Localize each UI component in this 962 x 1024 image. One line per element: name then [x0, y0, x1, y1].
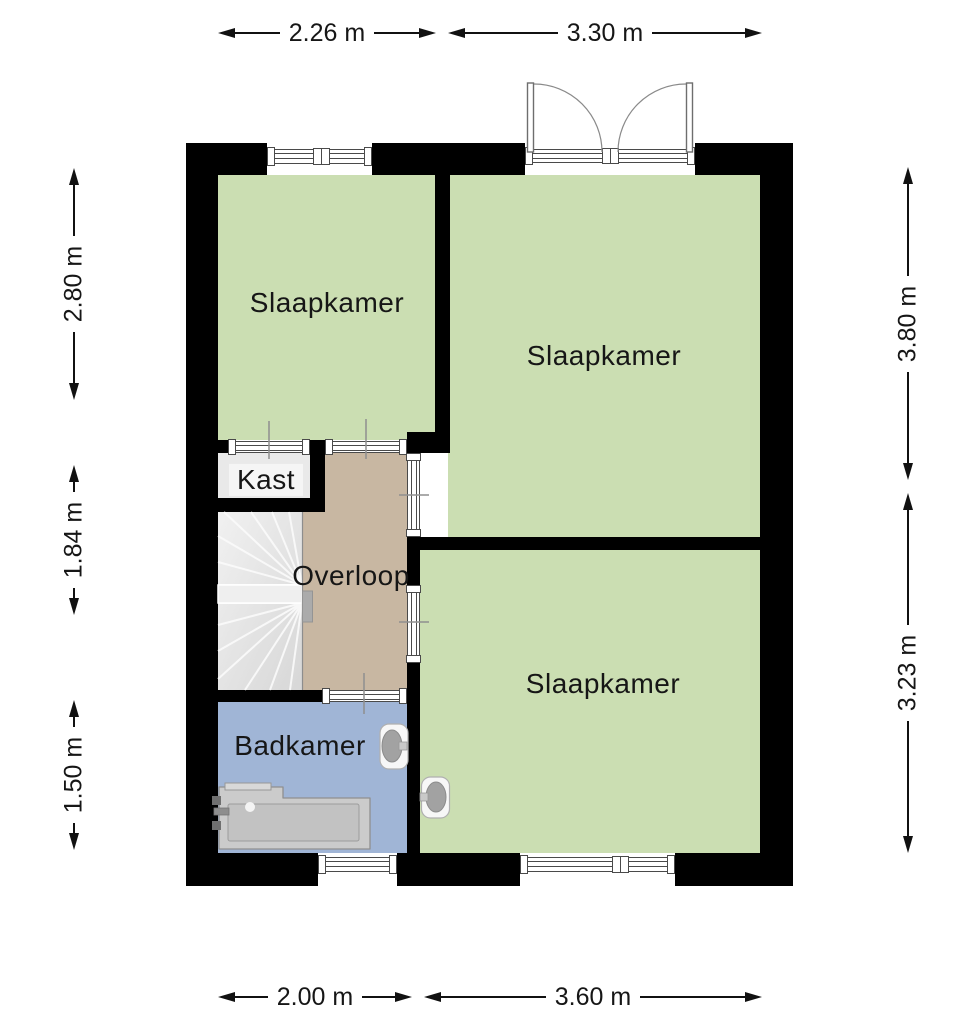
dimension-left-badkamer-height: 1.50 m	[60, 700, 88, 850]
wall-jog-overloop-corner	[407, 432, 450, 453]
door-hinge-block	[602, 148, 619, 164]
door-opening-kast	[228, 441, 310, 453]
wall-badkamer-top	[186, 690, 322, 702]
wall-exterior-bottom-b	[397, 853, 520, 886]
dimension-left-overloop-height: 1.84 m	[60, 465, 88, 615]
wall-exterior-top-b	[372, 143, 525, 175]
floor-plan: Slaapkamer Slaapkamer Slaapkamer Kast Ov…	[0, 0, 962, 1024]
door-opening-badkamer	[322, 690, 407, 702]
room-label-slaapkamer-top-left: Slaapkamer	[250, 287, 404, 319]
wall-exterior-bottom-c	[675, 853, 793, 886]
wall-exterior-right	[760, 143, 793, 886]
window-divider	[313, 148, 330, 165]
room-floor-overloop-lower	[302, 512, 407, 690]
dimension-top-right-width: 3.30 m	[448, 20, 762, 46]
room-floor-overloop-upper	[325, 453, 407, 512]
window-bottom-bedroom	[520, 857, 675, 872]
wall-between-top-bedrooms	[435, 175, 450, 443]
staircase	[218, 512, 313, 690]
wall-overloop-east-low	[407, 663, 420, 853]
window-divider	[612, 856, 629, 873]
window-top-bedroom	[267, 149, 372, 164]
room-label-slaapkamer-bottom-right: Slaapkamer	[526, 668, 680, 700]
french-door-sill	[525, 149, 695, 163]
dimension-bottom-bedroom-width: 3.60 m	[424, 984, 762, 1010]
room-floor-badkamer	[218, 702, 407, 853]
dimension-left-bedroom-height: 2.80 m	[60, 168, 88, 400]
french-doors	[528, 83, 693, 152]
room-label-slaapkamer-top-right: Slaapkamer	[527, 340, 681, 372]
wall-stub-left-bedroom	[218, 440, 228, 453]
dimension-bottom-badkamer-width: 2.00 m	[218, 984, 412, 1010]
room-label-badkamer: Badkamer	[234, 730, 366, 762]
room-label-overloop: Overloop	[292, 560, 410, 592]
room-label-kast: Kast	[229, 464, 303, 496]
dimension-top-left-width: 2.26 m	[218, 20, 436, 46]
wall-exterior-left	[186, 143, 218, 886]
room-floor-slaapkamer-bottom-right	[420, 550, 760, 853]
door-opening-top-left-bedroom	[325, 441, 407, 453]
window-bathroom	[318, 857, 397, 872]
door-opening-bottom-right-bedroom	[407, 585, 420, 663]
door-opening-top-right-bedroom	[407, 453, 420, 537]
dimension-right-top-bedroom-height: 3.80 m	[894, 167, 922, 480]
wall-kast-bottom	[186, 498, 325, 512]
wall-between-right-bedrooms	[420, 537, 760, 550]
wall-exterior-bottom-a	[186, 853, 318, 886]
dimension-right-bottom-bedroom-height: 3.23 m	[894, 493, 922, 853]
